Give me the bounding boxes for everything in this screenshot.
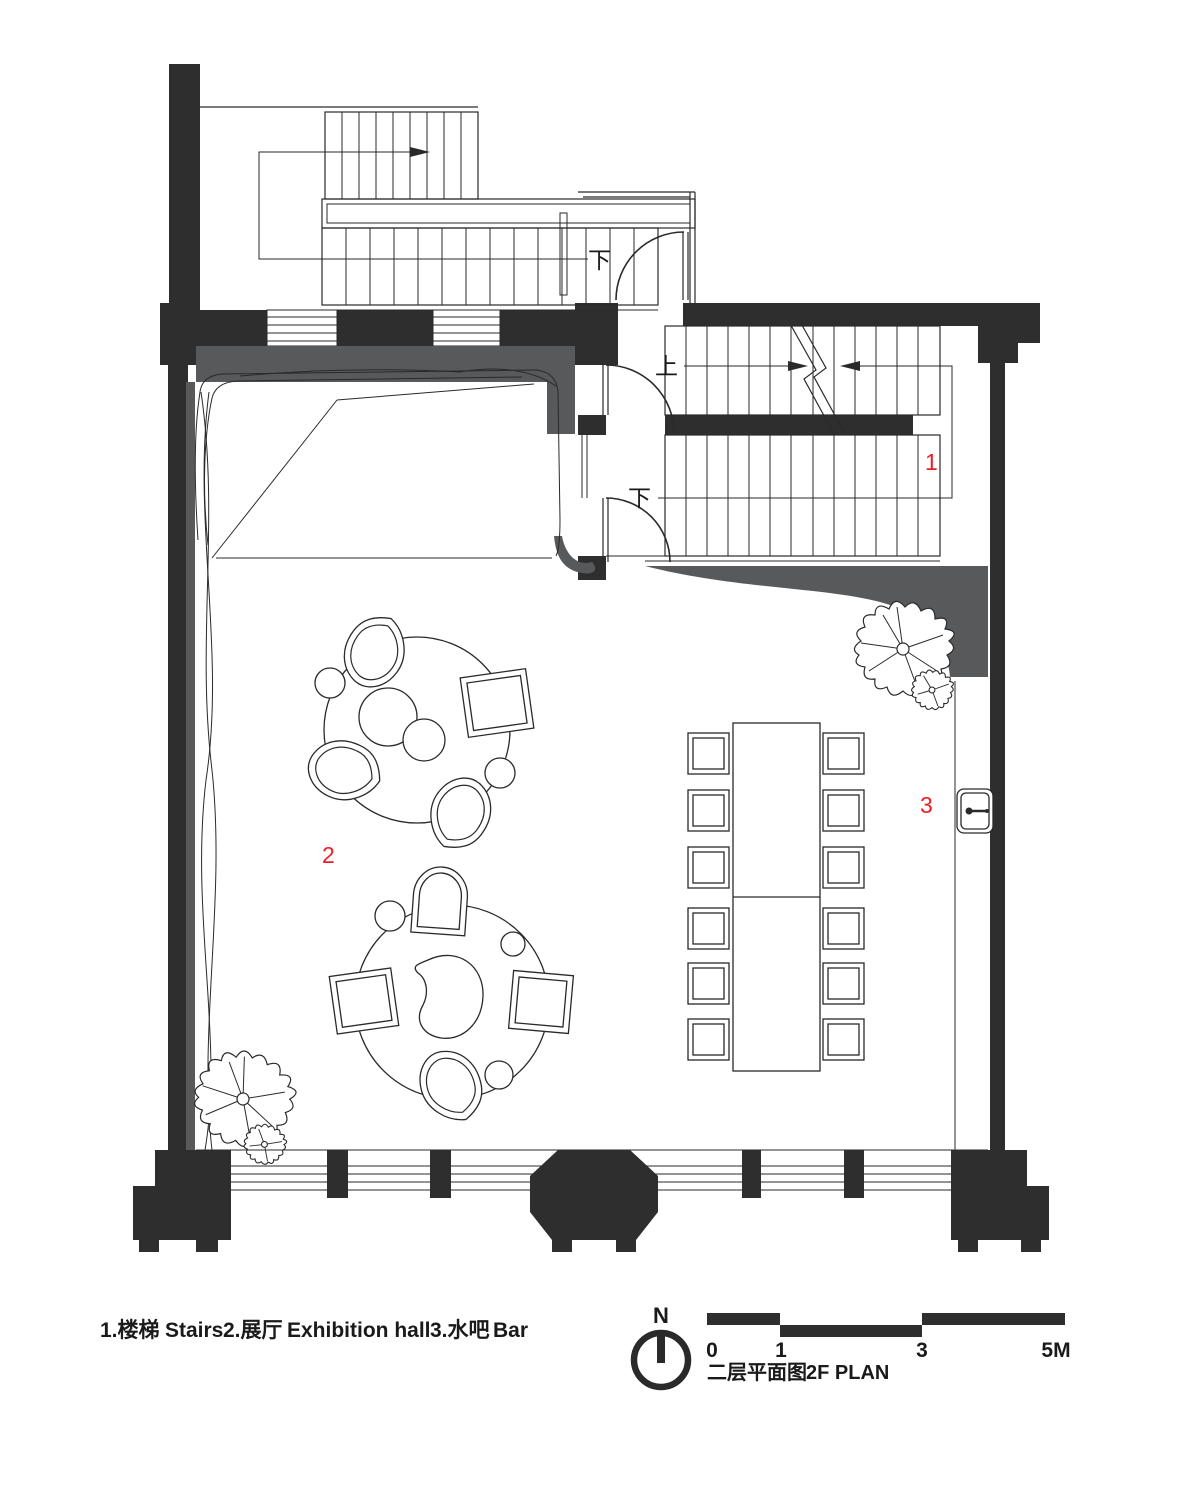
door-swing-arc (616, 232, 684, 300)
scale-tick-5m: 5M (1041, 1339, 1070, 1362)
soffit-strip-left (186, 382, 195, 1150)
partition-outline (195, 370, 560, 556)
square-chair (688, 733, 729, 774)
column (742, 1150, 761, 1198)
sink-icon (957, 789, 993, 833)
legend-item-1-name: Stairs (165, 1319, 223, 1342)
wall-pier-top-right (978, 326, 1018, 363)
partition-outline-2 (205, 377, 522, 545)
scale-bar: 0 1 3 5M (706, 1313, 1070, 1362)
square-chair (823, 790, 864, 831)
square-seat (329, 968, 398, 1034)
square-chair (688, 1019, 729, 1060)
direction-arrow-icon (840, 361, 860, 371)
curtain-wave (201, 392, 216, 1150)
stair-flight-down (665, 435, 940, 556)
legend-item-2-name: Exhibition hall (287, 1319, 431, 1342)
scale-tick-0: 0 (706, 1339, 718, 1362)
stair-down-label-upper: 下 (588, 247, 611, 273)
stool (315, 668, 345, 698)
plant-icon (854, 601, 954, 709)
floor-plan-svg: 上 下 下 1 2 3 1.楼梯 Stairs 2.展厅 Exhibition … (0, 0, 1200, 1485)
wall-segment (337, 310, 433, 346)
wall-left-corner (160, 303, 200, 365)
soffit-column (547, 346, 575, 434)
square-seat (460, 669, 534, 738)
arch-chair (411, 865, 470, 936)
stair-down-label: 下 (628, 485, 651, 511)
room-number-stairs: 1 (925, 449, 938, 475)
door-leaf (603, 363, 608, 415)
stair-flight-up (665, 326, 940, 415)
wall-stub (578, 415, 606, 435)
title-zh: 二层平面图 (707, 1361, 807, 1384)
round-table-1 (302, 606, 534, 859)
stair-up-label: 上 (655, 353, 678, 379)
legend-item-1-label: 1.楼梯 (100, 1318, 160, 1342)
square-chair (823, 1019, 864, 1060)
scale-segment (707, 1313, 780, 1325)
partition-fold-lines (212, 369, 556, 558)
window-hatch (433, 310, 500, 346)
wall-left (168, 365, 188, 1155)
long-table (688, 723, 864, 1071)
stair-landing-strip-inner (327, 204, 690, 223)
square-seat (509, 970, 574, 1033)
stool (375, 901, 405, 931)
soffit-curl (554, 536, 595, 573)
direction-arrow-icon (788, 361, 808, 371)
square-chair (688, 963, 729, 1004)
round-table-2 (329, 865, 573, 1131)
side-light (582, 435, 587, 498)
wall-stair-top (683, 303, 1040, 326)
room-number-bar: 3 (920, 792, 933, 818)
main-staircase (582, 318, 952, 562)
square-chair (688, 790, 729, 831)
soffit-band-top (196, 346, 547, 382)
wall-segment (196, 310, 267, 346)
scale-tick-3: 3 (916, 1339, 928, 1362)
landing-window (560, 213, 567, 295)
legend-item-3-name: Bar (493, 1319, 528, 1342)
north-label: N (653, 1303, 669, 1328)
table-decor (403, 719, 445, 761)
drawing-title: 二层平面图 2F PLAN (707, 1361, 889, 1384)
upper-staircase (200, 107, 695, 310)
stair-flight-upper (325, 112, 478, 199)
stair-treads (686, 326, 918, 415)
wall-right (990, 363, 1005, 1153)
north-needle (657, 1335, 665, 1363)
curtain-wave (202, 392, 213, 1150)
scale-tick-1: 1 (775, 1339, 787, 1362)
square-chair (823, 847, 864, 888)
column (844, 1150, 864, 1198)
pier-left (133, 1150, 231, 1252)
door-landing (616, 232, 688, 300)
stair-direction-line (259, 152, 588, 259)
pier-center-octagon (530, 1150, 658, 1252)
column (327, 1150, 348, 1198)
window-hatch (267, 310, 337, 346)
floor-plan-page: 上 下 下 1 2 3 1.楼梯 Stairs 2.展厅 Exhibition … (0, 0, 1200, 1485)
pier-right (951, 1150, 1049, 1252)
stool (501, 932, 525, 956)
wall-segment (500, 310, 575, 346)
wall-stair-divider (665, 415, 913, 435)
scale-segment (922, 1313, 1065, 1325)
stair-bottom-edge (606, 556, 940, 561)
stair-treads (342, 112, 461, 199)
wall-segment (575, 303, 618, 365)
stair-treads (686, 435, 918, 556)
plant-icon (185, 1044, 302, 1168)
stair-landing-strip (322, 199, 695, 228)
stool (485, 1061, 513, 1089)
square-chair (688, 847, 729, 888)
legend-item-2-label: 2.展厅 (223, 1319, 283, 1342)
door-leaf (603, 498, 608, 562)
column (430, 1150, 451, 1198)
square-chair (823, 908, 864, 949)
bottom-wall (133, 1150, 1049, 1252)
title-en: 2F PLAN (806, 1362, 889, 1384)
wall-pier-step (1018, 326, 1040, 343)
table-decor-bean (415, 955, 483, 1038)
legend-item-3-label: 3.水吧 (430, 1319, 490, 1342)
square-chair (688, 908, 729, 949)
scale-segment (780, 1325, 922, 1337)
door-leaf (683, 232, 688, 300)
stool (485, 758, 515, 788)
north-arrow-icon: N (634, 1303, 688, 1387)
square-chair (823, 733, 864, 774)
wall-upper-left-column (169, 64, 200, 310)
square-chair (823, 963, 864, 1004)
legend: 1.楼梯 Stairs 2.展厅 Exhibition hall 3.水吧 Ba… (100, 1318, 528, 1342)
bar-counter (955, 681, 993, 1150)
room-number-exhibition: 2 (322, 842, 335, 868)
